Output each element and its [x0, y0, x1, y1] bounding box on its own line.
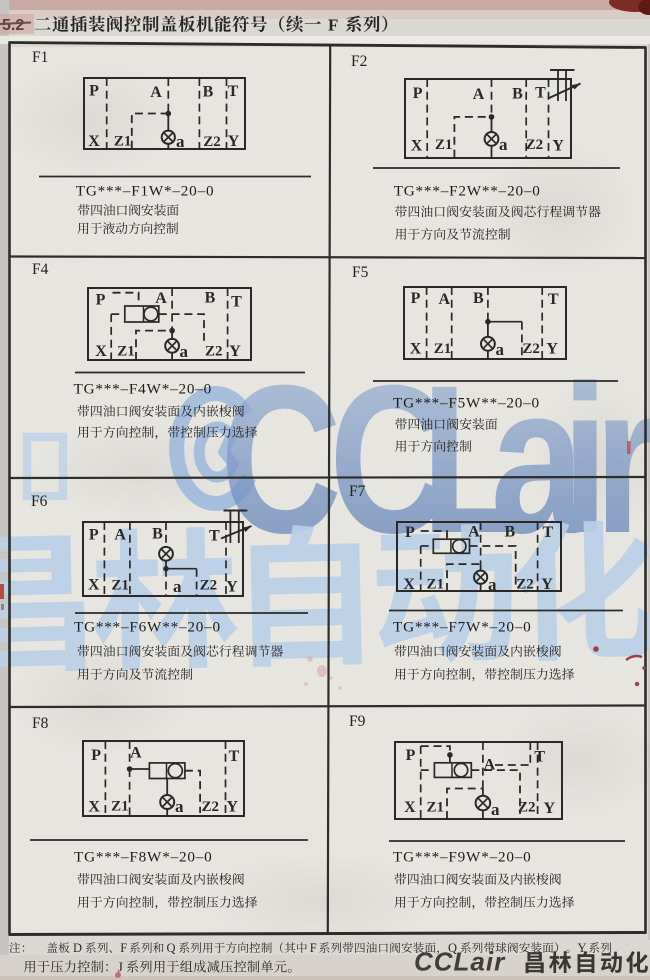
- svg-text:a: a: [491, 800, 500, 819]
- svg-text:T: T: [231, 293, 242, 310]
- svg-text:X: X: [411, 138, 423, 155]
- svg-text:TG***–F7W*–20–0: TG***–F7W*–20–0: [393, 619, 532, 636]
- svg-text:B: B: [473, 290, 484, 307]
- svg-text:TG***–F1W*–20–0: TG***–F1W*–20–0: [76, 183, 215, 200]
- svg-text:X: X: [88, 133, 100, 150]
- svg-text:F: F: [328, 16, 338, 35]
- svg-text:F5: F5: [352, 264, 369, 281]
- svg-text:Z1: Z1: [117, 343, 135, 359]
- svg-text:Y: Y: [228, 133, 240, 150]
- svg-text:Z1: Z1: [435, 137, 453, 153]
- svg-text:CCLair: CCLair: [414, 947, 506, 977]
- svg-text:B: B: [205, 289, 216, 306]
- svg-text:A: A: [484, 757, 496, 774]
- svg-text:Y: Y: [226, 578, 238, 595]
- svg-text:a: a: [488, 575, 497, 594]
- svg-text:Y: Y: [227, 799, 239, 816]
- svg-text:T: T: [548, 291, 559, 308]
- svg-text:Z1: Z1: [427, 800, 445, 816]
- svg-text:Z1: Z1: [427, 577, 445, 593]
- svg-text:5.2: 5.2: [2, 17, 24, 34]
- svg-text:Z2: Z2: [516, 577, 534, 593]
- svg-text:Y: Y: [552, 138, 564, 155]
- svg-text:TG***–F8W*–20–0: TG***–F8W*–20–0: [74, 849, 213, 866]
- svg-text:P: P: [406, 747, 416, 764]
- svg-text:T: T: [534, 748, 545, 765]
- svg-text:A: A: [439, 291, 451, 308]
- svg-text:F: F: [120, 941, 127, 955]
- svg-text:Z2: Z2: [205, 343, 223, 359]
- svg-text:a: a: [499, 135, 508, 154]
- svg-text:Z2: Z2: [203, 134, 221, 150]
- svg-text:F: F: [310, 941, 317, 955]
- svg-text:B: B: [512, 86, 523, 103]
- svg-text:F2: F2: [351, 53, 367, 70]
- svg-text:B: B: [152, 526, 163, 543]
- svg-text:P: P: [96, 291, 106, 308]
- svg-text:X: X: [410, 341, 422, 358]
- svg-text:P: P: [91, 747, 101, 764]
- svg-text:Z2: Z2: [518, 800, 536, 816]
- svg-text:TG***–F9W*–20–0: TG***–F9W*–20–0: [393, 849, 532, 866]
- svg-text:Z2: Z2: [202, 799, 220, 815]
- svg-text:X: X: [95, 343, 107, 360]
- svg-text:A: A: [114, 527, 126, 544]
- svg-text:T: T: [542, 524, 553, 541]
- svg-text:X: X: [404, 799, 416, 816]
- svg-text:a: a: [175, 797, 184, 816]
- svg-text:A: A: [468, 523, 480, 540]
- svg-text:D: D: [73, 941, 82, 955]
- svg-text:Y: Y: [546, 341, 558, 358]
- svg-text:TG***–F6W**–20–0: TG***–F6W**–20–0: [74, 619, 221, 636]
- svg-text:A: A: [473, 86, 485, 103]
- svg-text:a: a: [496, 340, 505, 359]
- svg-text:a: a: [180, 342, 189, 361]
- svg-text:Y: Y: [544, 800, 556, 817]
- svg-text:F6: F6: [31, 493, 48, 510]
- svg-text:P: P: [413, 85, 423, 102]
- svg-text:Z2: Z2: [526, 137, 544, 153]
- svg-text:F7: F7: [349, 483, 366, 500]
- svg-text:Q: Q: [167, 941, 176, 955]
- svg-text:T: T: [229, 748, 240, 765]
- svg-text:X: X: [88, 577, 100, 594]
- svg-text:TG***–F4W*–20–0: TG***–F4W*–20–0: [74, 381, 213, 398]
- svg-text:B: B: [203, 83, 214, 100]
- svg-text:T: T: [535, 84, 546, 101]
- svg-text:T: T: [228, 83, 239, 100]
- svg-text:Z1: Z1: [111, 799, 129, 815]
- svg-text:A: A: [150, 84, 162, 101]
- svg-text:Z1: Z1: [111, 577, 129, 593]
- svg-text:X: X: [403, 576, 415, 593]
- svg-text:F1: F1: [32, 49, 48, 66]
- svg-text:Z1: Z1: [114, 133, 132, 149]
- svg-text:Y: Y: [541, 576, 553, 593]
- svg-text:Z2: Z2: [200, 577, 218, 593]
- svg-text:F8: F8: [32, 715, 49, 732]
- svg-text:a: a: [176, 132, 185, 151]
- svg-text:T: T: [209, 527, 220, 544]
- svg-text:P: P: [411, 290, 421, 307]
- svg-text:P: P: [89, 527, 99, 544]
- svg-text:TG***–F5W**–20–0: TG***–F5W**–20–0: [393, 395, 540, 412]
- svg-text:Y: Y: [229, 343, 241, 360]
- svg-text:Z2: Z2: [522, 341, 540, 357]
- svg-text:P: P: [405, 524, 415, 541]
- svg-text:A: A: [130, 744, 142, 761]
- svg-text:Z1: Z1: [434, 341, 452, 357]
- svg-text:B: B: [504, 523, 515, 540]
- svg-text:F4: F4: [32, 261, 49, 278]
- svg-text:F9: F9: [349, 713, 366, 730]
- svg-text:X: X: [88, 799, 100, 816]
- svg-text:P: P: [89, 82, 99, 99]
- svg-text:TG***–F2W**–20–0: TG***–F2W**–20–0: [394, 183, 541, 200]
- svg-text:a: a: [173, 577, 182, 596]
- svg-text:A: A: [155, 290, 167, 307]
